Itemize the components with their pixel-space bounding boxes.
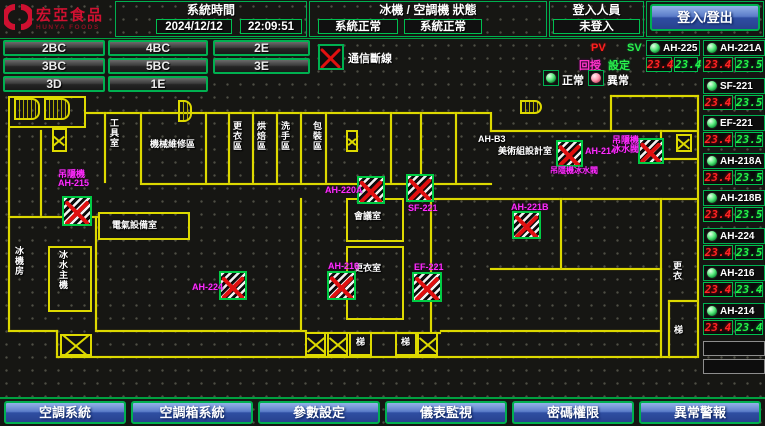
shaft-x-icon	[676, 134, 692, 152]
floor-button-4bc[interactable]: 4BC	[108, 40, 208, 56]
wall-segment	[390, 112, 392, 183]
shaft-x-icon	[327, 332, 348, 356]
unit-label-sf-221: SF-221	[408, 204, 438, 213]
wall-segment	[440, 330, 662, 332]
room-label: 梯	[401, 337, 410, 347]
floor-button-3d[interactable]: 3D	[3, 76, 105, 92]
login-status-value: 未登入	[553, 19, 640, 34]
floorplan-unit-ah-224[interactable]	[219, 271, 247, 300]
unit-status-led-icon	[706, 267, 718, 279]
wall-segment	[8, 330, 58, 332]
pv-value-ah-218b: 23.4	[703, 207, 733, 222]
wall-segment	[668, 300, 697, 302]
room-outline	[48, 246, 92, 312]
system-clock-value: 22:09:51	[240, 19, 302, 34]
stairs-icon	[14, 98, 40, 120]
wall-segment	[610, 95, 699, 97]
shaft-x-icon	[346, 130, 358, 152]
pv-value-ah-216: 23.4	[703, 282, 733, 297]
floorplan-unit-sf-221[interactable]	[406, 174, 434, 202]
nav-button-4[interactable]: 儀表監視	[385, 401, 507, 424]
unit-name-label: AH-214	[720, 306, 754, 317]
wall-segment	[8, 128, 10, 332]
logo-title: 宏亞食品	[36, 8, 104, 24]
unit-label-ah-224: AH-224	[192, 283, 223, 292]
sv-value-ef-221: 23.5	[735, 132, 763, 147]
sidebar-unit-sf-221[interactable]: SF-221	[703, 78, 765, 94]
pv-value-ah-221a: 23.4	[703, 57, 733, 72]
wall-segment	[104, 112, 106, 183]
sv-value-ah-221a: 23.5	[735, 57, 763, 72]
wall-segment	[668, 300, 670, 356]
floorplan-unit-ef-221[interactable]	[412, 272, 442, 302]
wall-segment	[490, 268, 662, 270]
wall-segment	[56, 330, 58, 358]
unit-name-label: AH-225	[663, 43, 697, 54]
floorplan-unit-ah-216[interactable]	[327, 271, 356, 300]
header-bar: 宏亞食品 HUNYA FOODS 系統時間 2024/12/12 22:09:5…	[0, 0, 765, 38]
unit-status-led-icon	[706, 42, 718, 54]
normal-label: 正常	[562, 72, 584, 88]
room-label: 會議室	[354, 211, 381, 221]
sidebar-unit-ah-216[interactable]: AH-216	[703, 265, 765, 281]
room-label: AH-B3	[478, 134, 506, 144]
sidebar-empty-slot	[703, 341, 765, 356]
wall-segment	[660, 198, 662, 358]
floor-button-2e[interactable]: 2E	[213, 40, 310, 56]
sv-value-sf-221: 23.5	[735, 95, 763, 110]
pv-value-ah-225: 23.4	[646, 57, 672, 72]
wall-segment	[86, 112, 490, 114]
unit-sublabel: 吊隱機冰水閥	[550, 166, 598, 175]
wall-segment	[300, 198, 302, 330]
unit-name-label: AH-218B	[720, 193, 762, 204]
unit-name-label: AH-224	[720, 231, 754, 242]
room-label: 更衣	[672, 261, 682, 281]
room-label: 工具室	[109, 118, 119, 148]
wall-segment	[252, 112, 254, 183]
unit-status-led-icon	[706, 117, 718, 129]
unit-name-label: AH-218A	[720, 156, 762, 167]
room-label: 烘焙區	[256, 121, 266, 151]
sv-value-ah-214: 23.4	[735, 320, 763, 335]
floor-button-5bc[interactable]: 5BC	[108, 58, 208, 74]
logo-subtitle: HUNYA FOODS	[36, 24, 104, 31]
comm-loss-icon	[318, 44, 344, 70]
unit-status-led-icon	[706, 192, 718, 204]
room-label: 美術組設計室	[498, 146, 552, 156]
pv-value-ah-214: 23.4	[703, 320, 733, 335]
unit-status-led-icon	[706, 230, 718, 242]
wall-segment	[610, 95, 612, 132]
system-date-value: 2024/12/12	[156, 19, 232, 34]
room-label: 包裝區	[312, 121, 322, 151]
wall-segment	[40, 130, 42, 218]
sv-value-ah-224: 23.5	[735, 245, 763, 260]
wall-segment	[455, 112, 457, 183]
unit-status-led-icon	[649, 42, 661, 54]
wall-segment	[95, 330, 307, 332]
comm-loss-label: 通信斷線	[348, 50, 392, 66]
wall-segment	[325, 112, 327, 183]
shaft-x-icon	[305, 332, 326, 356]
sv-value-ah-216: 23.4	[735, 282, 763, 297]
wall-segment	[205, 112, 207, 183]
hmi-main-screen: 宏亞食品 HUNYA FOODS 系統時間 2024/12/12 22:09:5…	[0, 0, 765, 426]
room-label: 梯	[356, 337, 365, 347]
floor-button-2bc[interactable]: 2BC	[3, 40, 105, 56]
floor-button-3e[interactable]: 3E	[213, 58, 310, 74]
room-label: 電氣設備室	[112, 220, 157, 230]
abnormal-label: 異常	[607, 72, 629, 88]
login-logout-button[interactable]: 登入/登出	[650, 4, 760, 31]
wall-segment	[140, 112, 142, 183]
floorplan-unit-ahu-valve[interactable]	[638, 138, 664, 164]
wall-segment	[95, 216, 97, 332]
sidebar-unit-ef-221[interactable]: EF-221	[703, 115, 765, 131]
sidebar-empty-slot	[703, 359, 765, 374]
unit-label-ah-216: AH-216	[328, 262, 359, 271]
shaft-x-icon	[52, 128, 67, 152]
stairs-icon	[520, 100, 542, 114]
sidebar-unit-ah-218b[interactable]: AH-218B	[703, 190, 765, 206]
room-label: 洗手區	[280, 121, 290, 151]
wall-segment	[300, 112, 302, 183]
pv-value-ah-218a: 23.4	[703, 170, 733, 185]
wall-segment	[56, 356, 697, 358]
logo-mark-icon	[4, 3, 32, 36]
unit-label-ah-215: 吊隱機AH-215	[58, 170, 89, 188]
sidebar-unit-ah-214[interactable]: AH-214	[703, 303, 765, 319]
unit-label-ah-220a: AH-220A	[325, 186, 363, 195]
wall-segment	[490, 130, 699, 132]
floorplan-unit-ah-221b[interactable]	[512, 211, 541, 239]
wall-segment	[697, 95, 699, 358]
room-label: 冰水主機	[58, 250, 68, 290]
wall-segment	[663, 158, 697, 160]
room-label: 更衣區	[232, 121, 242, 151]
wall-segment	[228, 112, 230, 183]
room-label: 機械維修區	[150, 139, 195, 149]
floorplan-unit-ah-215[interactable]	[62, 196, 92, 226]
setpoint-label: 設定	[608, 57, 630, 73]
nav-separator	[0, 397, 765, 399]
pv-value-sf-221: 23.4	[703, 95, 733, 110]
machine-status-label: 冰機 / 空調機 狀態	[309, 3, 547, 17]
unit-status-led-icon	[706, 305, 718, 317]
nav-button-1[interactable]: 空調系統	[4, 401, 126, 424]
wall-segment	[276, 112, 278, 183]
shaft-x-icon	[417, 332, 438, 356]
sv-value-ah-225: 23.4	[674, 57, 698, 72]
stairs-icon	[44, 98, 70, 120]
floor-button-3bc[interactable]: 3BC	[3, 58, 105, 74]
wall-segment	[430, 198, 697, 200]
unit-name-label: SF-221	[720, 81, 753, 92]
stairs-icon	[178, 100, 192, 122]
sv-value-ah-218b: 23.5	[735, 207, 763, 222]
sidebar-unit-ah-224[interactable]: AH-224	[703, 228, 765, 244]
normal-led-icon	[543, 70, 559, 86]
nav-button-2[interactable]: 空調箱系統	[131, 401, 253, 424]
wall-segment	[560, 198, 562, 268]
shaft-x-icon	[60, 334, 92, 356]
pv-value-ah-224: 23.4	[703, 245, 733, 260]
nav-button-3[interactable]: 參數設定	[258, 401, 380, 424]
sidebar-unit-ah-225[interactable]: AH-225	[646, 40, 700, 56]
unit-name-label: AH-216	[720, 268, 754, 279]
system-time-label: 系統時間	[115, 3, 307, 17]
floor-button-1e[interactable]: 1E	[108, 76, 208, 92]
unit-label-ah-221b: AH-221B	[511, 203, 549, 212]
wall-segment	[140, 183, 492, 185]
room-label: 冰機房	[14, 246, 24, 276]
abnormal-led-icon	[588, 70, 604, 86]
nav-button-5[interactable]: 密碼權限	[512, 401, 634, 424]
wall-segment	[420, 112, 422, 183]
unit-label-ahu-valve: 吊隱機冰水閥	[612, 136, 639, 154]
chiller-status-value: 系統正常	[318, 19, 398, 34]
sv-value-ah-218a: 23.5	[735, 170, 763, 185]
pv-label: PV	[591, 42, 606, 54]
login-label: 登入人員	[549, 3, 644, 17]
sv-label: SV	[627, 42, 642, 54]
unit-name-label: EF-221	[720, 118, 753, 129]
sidebar-unit-ah-221a[interactable]: AH-221A	[703, 40, 765, 56]
pv-value-ef-221: 23.4	[703, 132, 733, 147]
header-separator	[0, 38, 765, 39]
nav-button-6[interactable]: 異常警報	[639, 401, 761, 424]
unit-status-led-icon	[706, 155, 718, 167]
unit-name-label: AH-221A	[720, 43, 762, 54]
sidebar-unit-ah-218a[interactable]: AH-218A	[703, 153, 765, 169]
floorplan-unit-ah-214[interactable]	[556, 140, 583, 167]
unit-status-led-icon	[706, 80, 718, 92]
logo: 宏亞食品 HUNYA FOODS	[4, 3, 114, 35]
ahu-status-value: 系統正常	[404, 19, 482, 34]
unit-label-ef-221: EF-221	[414, 263, 444, 272]
wall-segment	[490, 112, 492, 132]
room-label: 梯	[674, 325, 683, 335]
